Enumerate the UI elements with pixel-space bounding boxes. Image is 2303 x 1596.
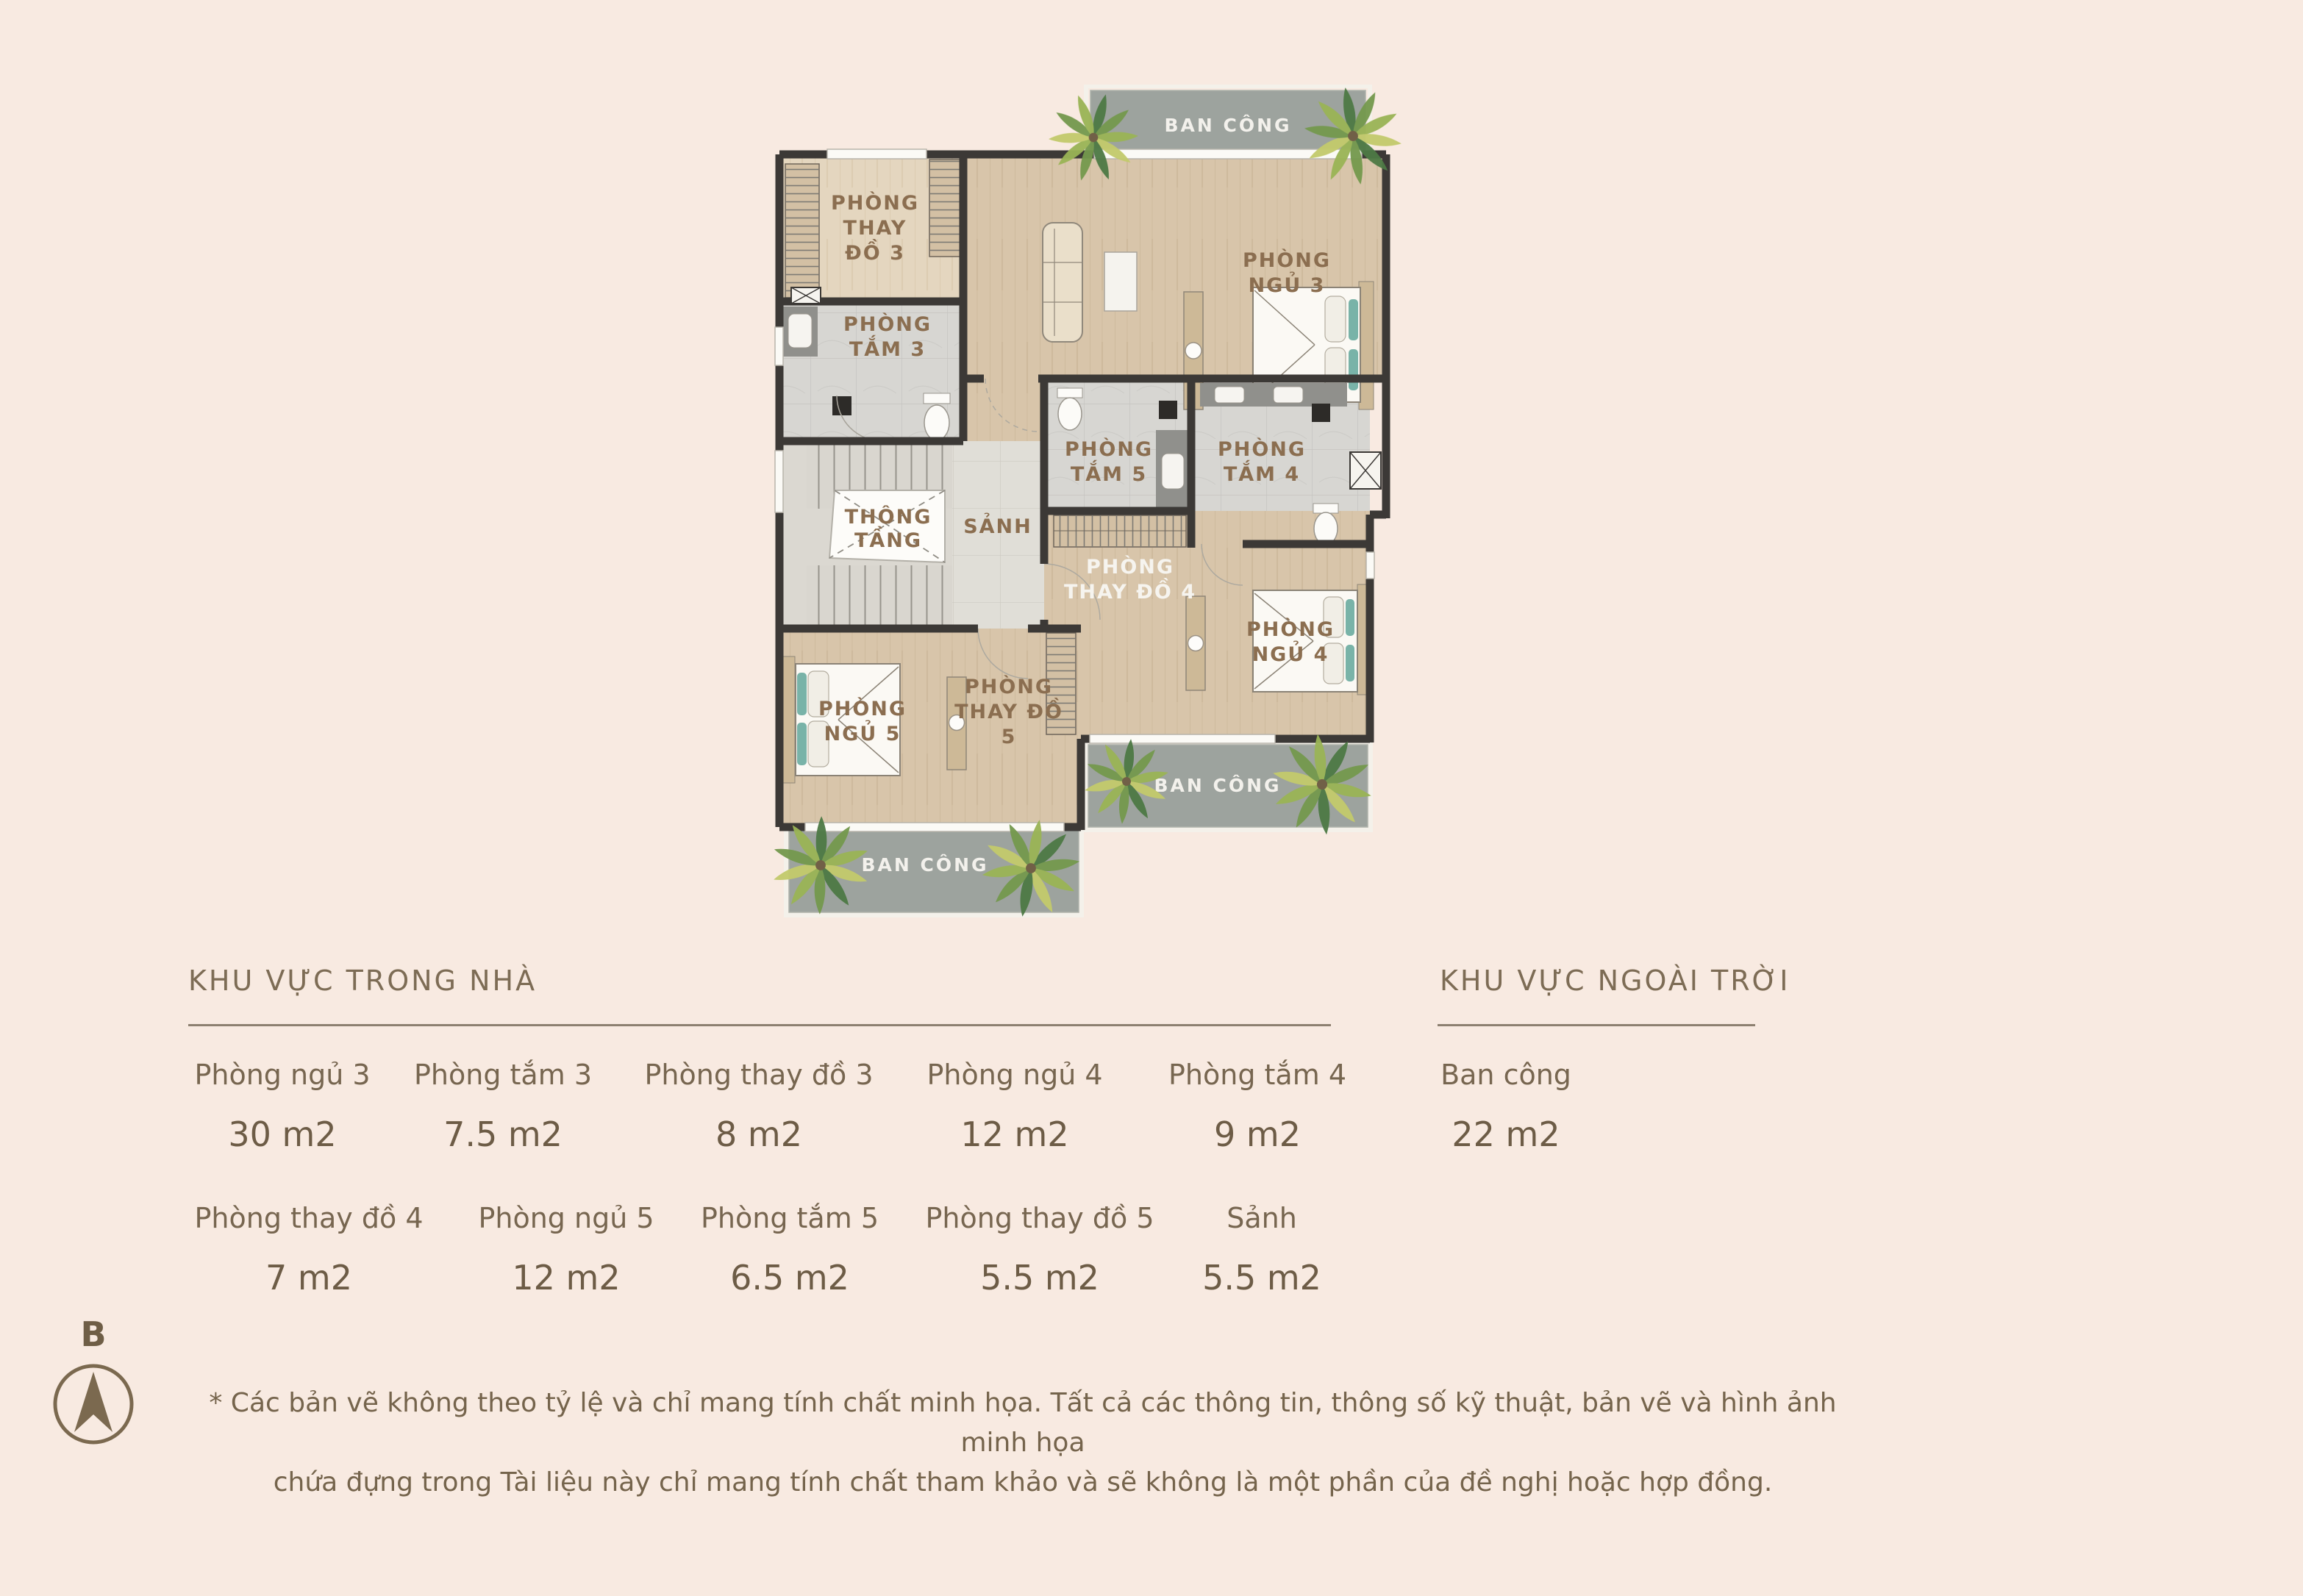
legend-item-area: 22 m2 bbox=[1440, 1116, 1571, 1153]
label-balcony-top: BAN CÔNG bbox=[1164, 114, 1291, 136]
legend-indoor-rule bbox=[188, 1024, 1331, 1026]
legend-item-area: 7.5 m2 bbox=[414, 1116, 592, 1153]
legend-item-area: 12 m2 bbox=[926, 1116, 1102, 1153]
legend-item: Phòng thay đồ 4 7 m2 bbox=[195, 1200, 424, 1296]
compass: B bbox=[46, 1316, 141, 1450]
legend-item-area: 9 m2 bbox=[1168, 1116, 1346, 1153]
legend-outdoor-title: KHU VỰC NGOÀI TRỜI bbox=[1440, 965, 1790, 997]
legend-item-name: Sảnh bbox=[1202, 1200, 1321, 1236]
page-canvas: BAN CÔNG PHÒNGTHAYĐỒ 3 PHÒNGTẮM 3 PHÒNGN… bbox=[0, 0, 2303, 1596]
legend-item: Ban công 22 m2 bbox=[1440, 1057, 1571, 1153]
disclaimer-line-1: * Các bản vẽ không theo tỷ lệ và chỉ man… bbox=[196, 1384, 1850, 1463]
label-hall: SẢNH bbox=[963, 512, 1032, 538]
legend-item: Phòng tắm 5 6.5 m2 bbox=[701, 1200, 879, 1296]
tv-console-4 bbox=[1186, 596, 1205, 690]
legend-item: Phòng ngủ 4 12 m2 bbox=[926, 1057, 1102, 1153]
legend-item-name: Phòng tắm 3 bbox=[414, 1057, 592, 1092]
compass-icon bbox=[51, 1361, 136, 1447]
legend-item: Phòng thay đồ 3 8 m2 bbox=[645, 1057, 874, 1153]
disclaimer-line-2: chứa đựng trong Tài liệu này chỉ mang tí… bbox=[196, 1463, 1850, 1503]
disclaimer: * Các bản vẽ không theo tỷ lệ và chỉ man… bbox=[196, 1384, 1850, 1503]
legend-item: Phòng ngủ 3 30 m2 bbox=[194, 1057, 370, 1153]
legend-item-area: 12 m2 bbox=[478, 1259, 654, 1296]
legend-indoor-title: KHU VỰC TRONG NHÀ bbox=[188, 965, 537, 997]
legend-item-area: 5.5 m2 bbox=[1202, 1259, 1321, 1296]
compass-north-label: B bbox=[46, 1316, 141, 1353]
legend-item: Phòng thay đồ 5 5.5 m2 bbox=[926, 1200, 1154, 1296]
label-balcony-bottom-left: BAN CÔNG bbox=[861, 854, 988, 876]
legend-item-name: Phòng tắm 5 bbox=[701, 1200, 879, 1236]
floor-plan-container: BAN CÔNG PHÒNGTHAYĐỒ 3 PHÒNGTẮM 3 PHÒNGN… bbox=[765, 85, 1419, 923]
coffee-table bbox=[1104, 252, 1137, 311]
legend-item-area: 7 m2 bbox=[195, 1259, 424, 1296]
legend-item-area: 6.5 m2 bbox=[701, 1259, 879, 1296]
legend-item-name: Phòng ngủ 4 bbox=[926, 1057, 1102, 1092]
legend-item-name: Phòng thay đồ 4 bbox=[195, 1200, 424, 1236]
floor-plan: BAN CÔNG PHÒNGTHAYĐỒ 3 PHÒNGTẮM 3 PHÒNGN… bbox=[765, 85, 1419, 923]
legend-item: Phòng ngủ 5 12 m2 bbox=[478, 1200, 654, 1296]
label-balcony-bottom-right: BAN CÔNG bbox=[1154, 774, 1281, 796]
legend-outdoor-rule bbox=[1438, 1024, 1755, 1026]
legend-item-name: Phòng ngủ 5 bbox=[478, 1200, 654, 1236]
corridor bbox=[963, 379, 1044, 445]
legend-item: Sảnh 5.5 m2 bbox=[1202, 1200, 1321, 1296]
legend-item-name: Phòng thay đồ 3 bbox=[645, 1057, 874, 1092]
legend-item-name: Phòng ngủ 3 bbox=[194, 1057, 370, 1092]
sofa bbox=[1043, 223, 1082, 342]
closet-dressing-4 bbox=[1054, 515, 1186, 547]
legend-item-name: Phòng thay đồ 5 bbox=[926, 1200, 1154, 1236]
legend-item-area: 5.5 m2 bbox=[926, 1259, 1154, 1296]
legend-item-area: 8 m2 bbox=[645, 1116, 874, 1153]
legend-item: Phòng tắm 4 9 m2 bbox=[1168, 1057, 1346, 1153]
legend-item-name: Phòng tắm 4 bbox=[1168, 1057, 1346, 1092]
legend-item: Phòng tắm 3 7.5 m2 bbox=[414, 1057, 592, 1153]
tv-console-5 bbox=[947, 677, 966, 770]
legend-item-area: 30 m2 bbox=[194, 1116, 370, 1153]
legend-item-name: Ban công bbox=[1440, 1057, 1571, 1092]
